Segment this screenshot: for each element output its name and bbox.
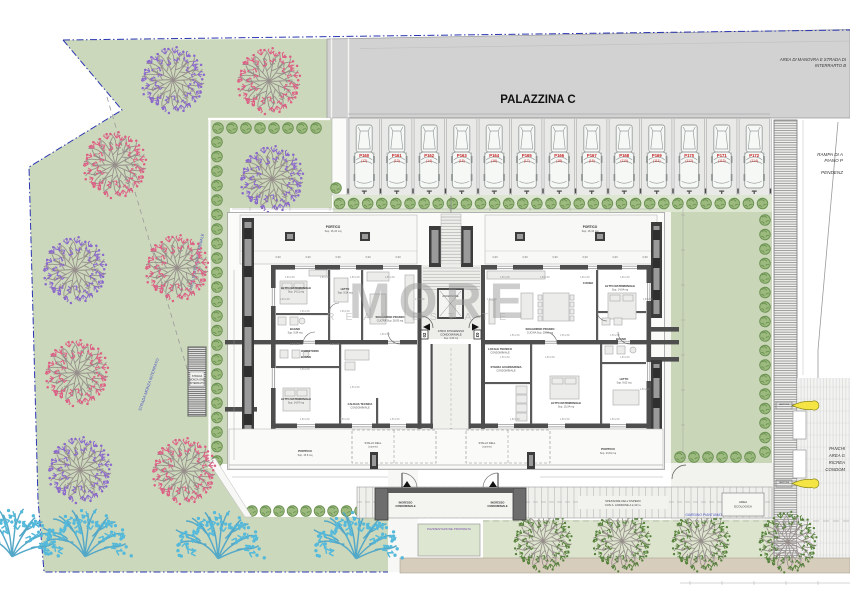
svg-text:1,50 2,30: 1,50 2,30 — [285, 277, 295, 279]
svg-text:(17): (17) — [524, 159, 530, 163]
svg-text:BAGNO: BAGNO — [290, 327, 300, 331]
svg-text:3,90: 3,90 — [612, 255, 618, 259]
svg-text:P163: P163 — [457, 153, 467, 158]
svg-text:LETTO: LETTO — [620, 377, 629, 381]
svg-text:P172: P172 — [749, 153, 759, 158]
svg-text:CONDOMINIALE: CONDOMINIALE — [490, 351, 510, 354]
svg-text:ECOLOGICA: ECOLOGICA — [734, 505, 752, 509]
svg-text:Sup. 9,62 mq: Sup. 9,62 mq — [617, 381, 632, 384]
svg-text:GIARDINO PIANTUMATO: GIARDINO PIANTUMATO — [685, 513, 725, 517]
svg-text:CON A. ANDRONE A 2,40 m.: CON A. ANDRONE A 2,40 m. — [605, 503, 642, 507]
svg-text:1,50 2,30: 1,50 2,30 — [300, 311, 310, 313]
svg-text:INTERRATO: INTERRATO — [190, 381, 205, 385]
svg-text:LETTO MATRIMONIALE: LETTO MATRIMONIALE — [281, 397, 311, 401]
svg-text:RAMPA DI A: RAMPA DI A — [817, 152, 843, 157]
svg-text:3,90: 3,90 — [335, 255, 341, 259]
svg-text:CONDOMINIALE: CONDOMINIALE — [496, 369, 516, 372]
svg-text:STANZA GUARDAROBA: STANZA GUARDAROBA — [490, 365, 521, 369]
svg-text:BAGNO: BAGNO — [301, 355, 311, 359]
svg-text:1,50 2,30: 1,50 2,30 — [487, 299, 497, 301]
svg-text:(18): (18) — [556, 159, 562, 163]
svg-text:Sup. 15,34 mq: Sup. 15,34 mq — [558, 405, 575, 408]
svg-text:1,50 2,30: 1,50 2,30 — [560, 419, 570, 421]
svg-text:P167: P167 — [587, 153, 597, 158]
svg-text:PORTICO: PORTICO — [601, 447, 615, 451]
svg-text:BAGNO: BAGNO — [616, 337, 626, 341]
svg-text:LETTO MATRIMONIALE: LETTO MATRIMONIALE — [551, 401, 581, 405]
svg-text:P168: P168 — [619, 153, 629, 158]
svg-text:CONDOMINIALE: CONDOMINIALE — [395, 504, 416, 508]
svg-text:(114): (114) — [750, 159, 758, 163]
svg-text:P161: P161 — [392, 153, 402, 158]
svg-text:P170: P170 — [684, 153, 694, 158]
svg-text:(12): (12) — [361, 159, 367, 163]
svg-text:P162: P162 — [424, 153, 434, 158]
svg-text:1,50 2,30: 1,50 2,30 — [540, 277, 550, 279]
svg-text:(111): (111) — [653, 159, 660, 163]
svg-text:Sup. 5,94 mq: Sup. 5,94 mq — [288, 331, 303, 334]
svg-text:1,50 2,30: 1,50 2,30 — [545, 357, 555, 359]
svg-text:RICREA: RICREA — [829, 460, 845, 465]
svg-text:DORMITORIO: DORMITORIO — [301, 349, 318, 353]
svg-text:CONDOMINIALE: CONDOMINIALE — [350, 406, 370, 409]
svg-text:(110): (110) — [620, 159, 628, 163]
svg-text:(19): (19) — [589, 159, 595, 163]
svg-text:REAL ESTATE: REAL ESTATE — [327, 311, 517, 323]
svg-text:02: 02 — [422, 332, 427, 337]
svg-text:3,90: 3,90 — [552, 255, 558, 259]
svg-text:P165: P165 — [522, 153, 532, 158]
svg-text:(coperto): (coperto) — [482, 446, 492, 449]
svg-text:PORTICO: PORTICO — [298, 449, 312, 453]
svg-text:INGRESSO: INGRESSO — [399, 501, 413, 505]
svg-text:AREA DI MANOVRA E STRADA DI: AREA DI MANOVRA E STRADA DI — [779, 57, 847, 62]
svg-text:INTERRARTO B: INTERRARTO B — [815, 63, 846, 68]
svg-text:1,50 2,30: 1,50 2,30 — [300, 369, 310, 371]
svg-text:(14): (14) — [426, 159, 432, 163]
svg-text:1,50 2,30: 1,50 2,30 — [350, 387, 360, 389]
svg-text:Sup. 15,8 mq: Sup. 15,8 mq — [298, 454, 313, 457]
svg-text:1,50 2,30: 1,50 2,30 — [320, 277, 330, 279]
svg-text:3,90: 3,90 — [522, 255, 528, 259]
svg-text:1,50 2,30: 1,50 2,30 — [340, 311, 350, 313]
svg-text:(13): (13) — [394, 159, 400, 163]
svg-text:PANCHI: PANCHI — [829, 446, 846, 451]
svg-text:AREA G: AREA G — [828, 453, 846, 458]
svg-text:3,90: 3,90 — [492, 255, 498, 259]
svg-text:P169: P169 — [652, 153, 662, 158]
svg-text:Sup. 14,97 mq: Sup. 14,97 mq — [288, 401, 305, 404]
svg-text:INGRESSO: INGRESSO — [491, 501, 505, 505]
svg-text:LAMPIONE: LAMPIONE — [779, 481, 790, 484]
svg-text:3,90: 3,90 — [305, 255, 311, 259]
svg-text:(15): (15) — [459, 159, 465, 163]
svg-text:1,50 2,30: 1,50 2,30 — [610, 419, 620, 421]
svg-text:(16): (16) — [491, 159, 497, 163]
svg-text:1,50 2,30: 1,50 2,30 — [580, 277, 590, 279]
svg-text:CALDAIA TECNICA: CALDAIA TECNICA — [348, 402, 373, 406]
svg-text:1,50 2,30: 1,50 2,30 — [643, 299, 653, 301]
svg-text:3,90: 3,90 — [395, 255, 401, 259]
svg-text:1,50 2,30: 1,50 2,30 — [290, 344, 300, 346]
svg-text:1,50 2,30: 1,50 2,30 — [300, 419, 310, 421]
svg-text:1,50 2,30: 1,50 2,30 — [500, 277, 510, 279]
svg-text:CUCINA: CUCINA — [583, 281, 594, 285]
svg-text:1,50 2,30: 1,50 2,30 — [620, 277, 630, 279]
svg-text:1,50 2,30: 1,50 2,30 — [620, 357, 630, 359]
svg-text:03: 03 — [475, 333, 480, 338]
svg-text:CONDOMINIALE: CONDOMINIALE — [487, 504, 508, 508]
svg-text:LOCALE TECNICO: LOCALE TECNICO — [488, 347, 512, 351]
svg-text:Sup. 14,04 mq: Sup. 14,04 mq — [612, 288, 629, 291]
svg-text:PIANO P: PIANO P — [824, 158, 844, 163]
svg-text:Sup. 16,16 mq: Sup. 16,16 mq — [325, 229, 342, 233]
svg-text:CONDOMINIALE: CONDOMINIALE — [440, 333, 462, 337]
svg-text:LAMPIONE: LAMPIONE — [779, 403, 790, 406]
svg-text:1,50 2,30: 1,50 2,30 — [640, 389, 650, 391]
svg-text:Sup. 14,11 mq: Sup. 14,11 mq — [288, 290, 305, 293]
svg-text:1,50 2,30: 1,50 2,30 — [385, 277, 395, 279]
svg-text:P171: P171 — [717, 153, 727, 158]
svg-text:STALLO DELL: STALLO DELL — [365, 441, 383, 445]
svg-text:(113): (113) — [718, 159, 726, 163]
svg-text:LETTO MATRIMONIALE: LETTO MATRIMONIALE — [281, 286, 311, 290]
svg-text:P160: P160 — [359, 153, 369, 158]
svg-text:1,50 2,30: 1,50 2,30 — [280, 299, 290, 301]
svg-text:LETTO MATRIMONIALE: LETTO MATRIMONIALE — [605, 284, 635, 288]
svg-text:3,90: 3,90 — [275, 255, 281, 259]
svg-text:PORTICO: PORTICO — [583, 225, 598, 229]
svg-text:STRADA: STRADA — [192, 374, 203, 378]
svg-text:PORTICO: PORTICO — [326, 225, 341, 229]
svg-text:STALLO DELL: STALLO DELL — [479, 441, 497, 445]
svg-text:1,50 2,30: 1,50 2,30 — [330, 344, 340, 346]
svg-text:Sup. 23,81 mq: Sup. 23,81 mq — [600, 452, 617, 455]
svg-text:1,50 2,30: 1,50 2,30 — [340, 419, 350, 421]
svg-text:MONZA ONE: MONZA ONE — [189, 378, 205, 382]
svg-text:1,50 2,30: 1,50 2,30 — [560, 335, 570, 337]
svg-text:AREA: AREA — [739, 500, 747, 504]
svg-text:1,50 2,30: 1,50 2,30 — [390, 419, 400, 421]
svg-text:1,50 2,30: 1,50 2,30 — [610, 335, 620, 337]
svg-text:CONDOM: CONDOM — [825, 467, 845, 472]
svg-text:1,50 2,30: 1,50 2,30 — [380, 334, 390, 336]
svg-text:P164: P164 — [489, 153, 499, 158]
svg-text:1,50 2,30: 1,50 2,30 — [510, 335, 520, 337]
svg-text:(112): (112) — [685, 159, 693, 163]
svg-text:P166: P166 — [554, 153, 564, 158]
svg-text:Sup. 9,06 mq: Sup. 9,06 mq — [444, 337, 459, 340]
svg-text:1,50 2,30: 1,50 2,30 — [510, 419, 520, 421]
svg-text:3,90: 3,90 — [582, 255, 588, 259]
svg-text:3,90: 3,90 — [365, 255, 371, 259]
svg-text:(coperto): (coperto) — [368, 446, 378, 449]
svg-text:1,50 2,30: 1,50 2,30 — [500, 357, 510, 359]
svg-text:PAVIMENTAZIONE PROPRIETA: PAVIMENTAZIONE PROPRIETA — [427, 527, 471, 531]
svg-text:1,50 2,30: 1,50 2,30 — [415, 299, 425, 301]
svg-text:3,90: 3,90 — [642, 255, 648, 259]
svg-text:PENDENZ: PENDENZ — [821, 170, 843, 175]
svg-text:PALAZZINA C: PALAZZINA C — [500, 94, 575, 106]
svg-text:1,50 2,30: 1,50 2,30 — [350, 277, 360, 279]
